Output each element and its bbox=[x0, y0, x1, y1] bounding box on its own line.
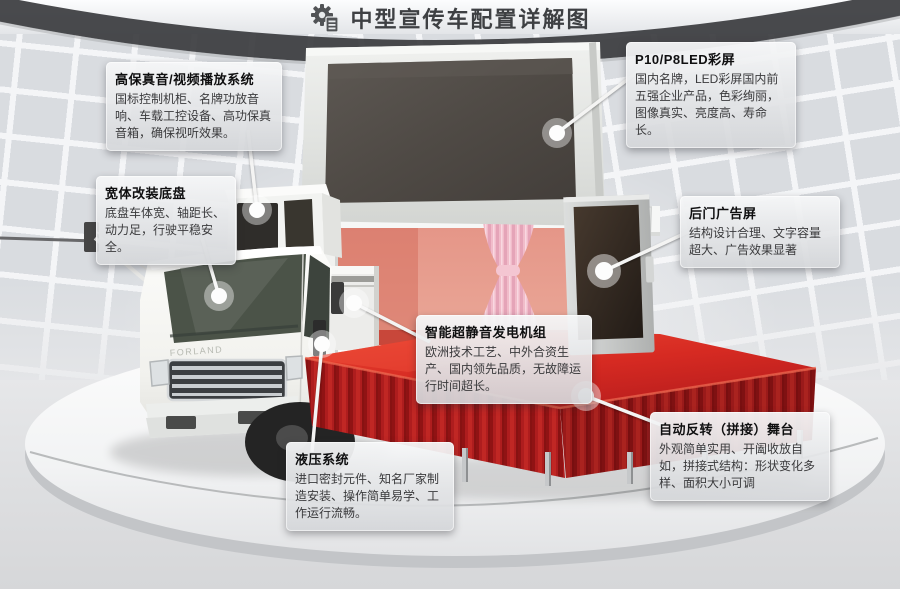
callout-dot-hifi-audio bbox=[242, 195, 272, 225]
callout-title: P10/P8LED彩屏 bbox=[635, 49, 787, 68]
callout-body: 国内名牌，LED彩屏国内前五强企业产品，色彩绚丽，图像真实、亮度高、寿命长。 bbox=[635, 71, 787, 139]
callout-title: 自动反转（拼接）舞台 bbox=[659, 419, 821, 438]
callout-line-hydraulic-system bbox=[312, 344, 322, 452]
callout-hifi-audio: 高保真音/视频播放系统 国标控制机柜、名牌功放音响、车载工控设备、高功保真音箱，… bbox=[106, 62, 282, 151]
callout-body: 结构设计合理、文字容量超大、广告效果显著 bbox=[689, 225, 831, 259]
callout-body: 进口密封元件、知名厂家制造安装、操作简单易学、工作运行流畅。 bbox=[295, 471, 445, 522]
callout-silent-generator: 智能超静音发电机组 欧洲技术工艺、中外合资生产、国内领先品质，无故障运行时间超长… bbox=[416, 315, 592, 404]
callout-folding-stage: 自动反转（拼接）舞台 外观简单实用、开阖收放自如，拼接式结构：形状变化多样、面积… bbox=[650, 412, 830, 501]
callout-dot-rear-door-ad-screen bbox=[587, 254, 621, 288]
callout-rear-door-ad-screen: 后门广告屏 结构设计合理、文字容量超大、广告效果显著 bbox=[680, 196, 840, 268]
callout-hydraulic-system: 液压系统 进口密封元件、知名厂家制造安装、操作简单易学、工作运行流畅。 bbox=[286, 442, 454, 531]
infographic-canvas: 中型宣传车配置详解图 bbox=[0, 0, 900, 589]
callout-dot-hydraulic-system bbox=[308, 330, 336, 358]
callout-title: 后门广告屏 bbox=[689, 203, 831, 222]
callout-body: 底盘车体宽、轴距长、动力足，行驶平稳安全。 bbox=[105, 205, 227, 256]
callout-dot-led-color-screen bbox=[542, 118, 572, 148]
callout-title: 智能超静音发电机组 bbox=[425, 322, 583, 341]
callout-dot-silent-generator bbox=[339, 288, 369, 318]
callout-title: 液压系统 bbox=[295, 449, 445, 468]
callout-title: 宽体改装底盘 bbox=[105, 183, 227, 202]
callout-body: 国标控制机柜、名牌功放音响、车载工控设备、高功保真音箱，确保视听效果。 bbox=[115, 91, 273, 142]
callout-led-color-screen: P10/P8LED彩屏 国内名牌，LED彩屏国内前五强企业产品，色彩绚丽，图像真… bbox=[626, 42, 796, 148]
callout-body: 外观简单实用、开阖收放自如，拼接式结构：形状变化多样、面积大小可调 bbox=[659, 441, 821, 492]
callout-title: 高保真音/视频播放系统 bbox=[115, 69, 273, 88]
callout-wide-chassis: 宽体改装底盘 底盘车体宽、轴距长、动力足，行驶平稳安全。 bbox=[96, 176, 236, 265]
callout-dot-wide-chassis bbox=[204, 281, 234, 311]
callout-body: 欧洲技术工艺、中外合资生产、国内领先品质，无故障运行时间超长。 bbox=[425, 344, 583, 395]
